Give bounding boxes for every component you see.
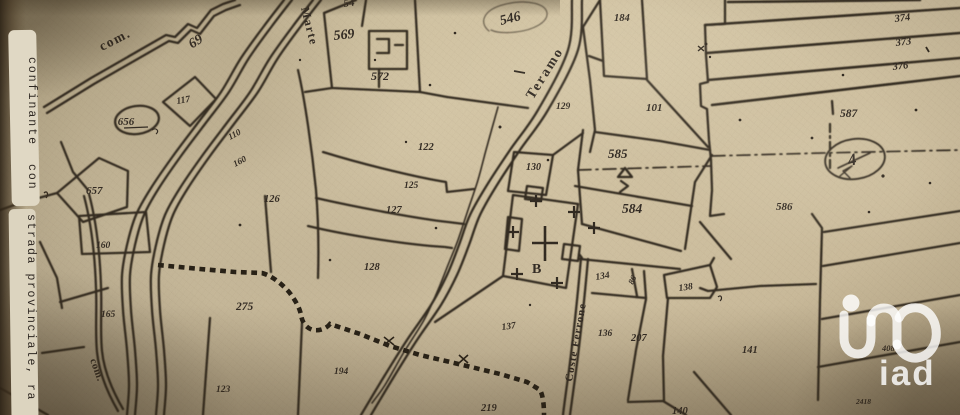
svg-text:strada provinciale, ra: strada provinciale, ra bbox=[24, 214, 37, 401]
svg-text:con: con bbox=[25, 164, 38, 191]
svg-text:iad: iad bbox=[879, 354, 936, 393]
svg-text:confinante: confinante bbox=[25, 57, 38, 146]
